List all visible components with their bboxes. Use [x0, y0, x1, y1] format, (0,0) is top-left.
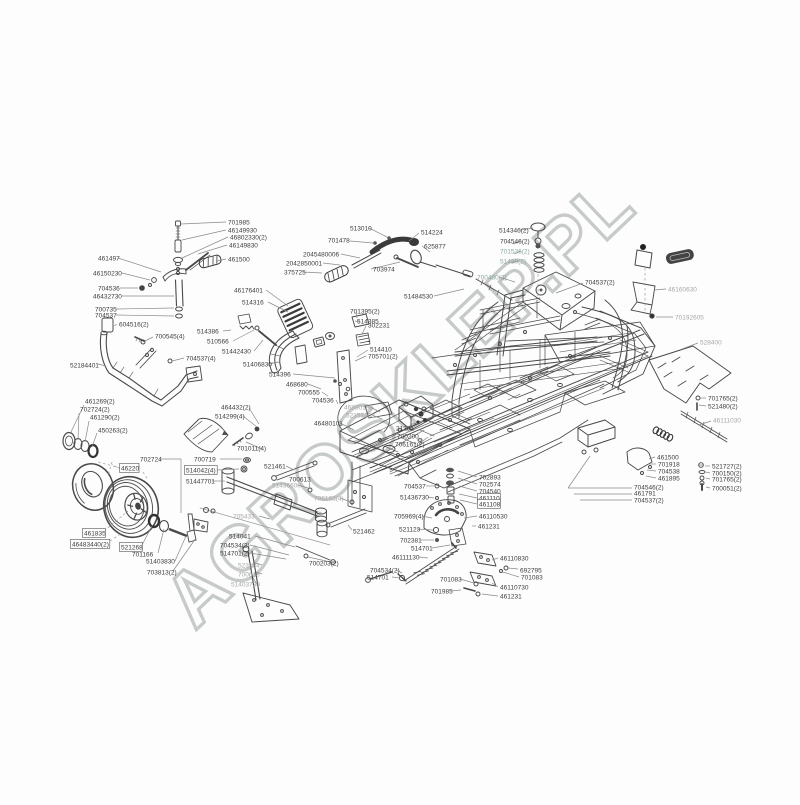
svg-text:461500: 461500 — [228, 256, 250, 263]
svg-text:700051(2): 700051(2) — [712, 485, 742, 492]
svg-text:523134: 523134 — [238, 562, 260, 569]
svg-text:706163(4): 706163(4) — [314, 495, 344, 502]
svg-text:625877: 625877 — [424, 243, 446, 250]
svg-text:46802330(2): 46802330(2) — [230, 234, 267, 241]
svg-text:461231: 461231 — [478, 523, 500, 530]
svg-text:704534(2): 704534(2) — [220, 542, 250, 549]
svg-text:702574: 702574 — [479, 481, 501, 488]
svg-text:701918: 701918 — [658, 461, 680, 468]
svg-text:703974: 703974 — [373, 266, 395, 273]
svg-text:461108: 461108 — [479, 501, 501, 508]
svg-text:46150230: 46150230 — [93, 270, 122, 277]
svg-text:704546(2): 704546(2) — [500, 238, 530, 245]
svg-text:514041: 514041 — [229, 533, 251, 540]
svg-text:514701: 514701 — [411, 545, 433, 552]
svg-text:21361: 21361 — [396, 425, 414, 432]
svg-text:513010: 513010 — [350, 225, 372, 232]
svg-text:528400: 528400 — [700, 339, 722, 346]
svg-text:514042(4): 514042(4) — [186, 467, 216, 474]
svg-text:46149930: 46149930 — [228, 227, 257, 234]
svg-text:46220: 46220 — [121, 465, 139, 472]
svg-text:461500: 461500 — [657, 454, 679, 461]
svg-text:704534(2): 704534(2) — [370, 567, 400, 574]
svg-text:464432(2): 464432(2) — [221, 404, 251, 411]
svg-text:706161(2): 706161(2) — [395, 441, 425, 448]
svg-text:2045480006: 2045480006 — [303, 251, 340, 258]
svg-text:52184401: 52184401 — [70, 362, 99, 369]
svg-text:51484530: 51484530 — [404, 293, 433, 300]
svg-text:521123: 521123 — [399, 526, 421, 533]
svg-text:51406830: 51406830 — [243, 361, 272, 368]
svg-text:461497: 461497 — [98, 255, 120, 262]
svg-text:704537: 704537 — [95, 312, 117, 319]
svg-text:702724(2): 702724(2) — [80, 406, 110, 413]
svg-text:705433: 705433 — [233, 513, 255, 520]
svg-text:51403730: 51403730 — [231, 581, 260, 588]
svg-text:692795: 692795 — [520, 567, 542, 574]
svg-text:46110730: 46110730 — [500, 584, 529, 591]
svg-text:461269(2): 461269(2) — [85, 398, 115, 405]
svg-text:461290(2): 461290(2) — [90, 414, 120, 421]
svg-text:700545(4): 700545(4) — [155, 333, 185, 340]
svg-text:46149830: 46149830 — [229, 242, 258, 249]
svg-text:700480(2): 700480(2) — [477, 274, 507, 281]
svg-text:701083: 701083 — [521, 574, 543, 581]
svg-text:461835: 461835 — [84, 530, 106, 537]
svg-text:302231: 302231 — [368, 322, 390, 329]
svg-text:701166: 701166 — [132, 551, 154, 558]
svg-text:521480(2): 521480(2) — [708, 403, 738, 410]
svg-text:51480(2): 51480(2) — [500, 258, 526, 265]
svg-text:521461: 521461 — [264, 463, 286, 470]
svg-text:701985: 701985 — [228, 219, 250, 226]
svg-text:701011(4): 701011(4) — [237, 445, 266, 452]
svg-text:375725: 375725 — [284, 269, 306, 276]
svg-text:700203(2): 700203(2) — [309, 560, 339, 567]
svg-text:461231: 461231 — [500, 593, 522, 600]
svg-text:704537(4): 704537(4) — [186, 355, 216, 362]
svg-text:46890103: 46890103 — [344, 404, 373, 411]
svg-text:52157303: 52157303 — [346, 412, 375, 419]
svg-text:461791: 461791 — [634, 490, 656, 497]
svg-text:704537(2): 704537(2) — [585, 279, 615, 286]
svg-text:702724: 702724 — [140, 456, 162, 463]
svg-text:46480101: 46480101 — [314, 420, 343, 427]
svg-text:2042850001: 2042850001 — [286, 260, 323, 267]
svg-text:700200: 700200 — [397, 433, 419, 440]
svg-text:700618: 700618 — [238, 571, 260, 578]
svg-text:46110830: 46110830 — [500, 555, 529, 562]
svg-text:461895: 461895 — [658, 475, 680, 482]
svg-text:51403830: 51403830 — [146, 558, 175, 565]
svg-text:701765(2): 701765(2) — [712, 476, 742, 483]
svg-text:514299(4): 514299(4) — [215, 413, 245, 420]
svg-text:514224: 514224 — [421, 229, 443, 236]
svg-text:514410: 514410 — [370, 346, 392, 353]
svg-text:700555: 700555 — [298, 389, 320, 396]
svg-text:514386: 514386 — [197, 328, 219, 335]
svg-text:514316: 514316 — [242, 299, 264, 306]
svg-text:46111030: 46111030 — [713, 417, 741, 424]
svg-text:704537(2): 704537(2) — [634, 497, 664, 504]
svg-text:514701(2): 514701(2) — [220, 550, 250, 557]
svg-text:521727(2): 521727(2) — [712, 463, 742, 470]
svg-text:46160630: 46160630 — [668, 286, 697, 293]
svg-text:701083: 701083 — [440, 576, 462, 583]
svg-text:450263(2): 450263(2) — [98, 427, 128, 434]
svg-text:701765(2): 701765(2) — [708, 395, 738, 402]
svg-text:514701: 514701 — [367, 574, 389, 581]
svg-text:701985: 701985 — [431, 588, 453, 595]
svg-text:701536(2): 701536(2) — [500, 248, 530, 255]
svg-text:701478: 701478 — [328, 237, 350, 244]
svg-text:46110530: 46110530 — [479, 513, 508, 520]
svg-text:703813(2): 703813(2) — [147, 569, 177, 576]
svg-text:704538: 704538 — [658, 468, 680, 475]
svg-text:702381: 702381 — [400, 537, 422, 544]
svg-text:705701(2): 705701(2) — [368, 353, 398, 360]
svg-text:521268: 521268 — [121, 544, 143, 551]
svg-text:46176401: 46176401 — [234, 287, 263, 294]
svg-text:704536: 704536 — [312, 397, 334, 404]
svg-text:51436600: 51436600 — [272, 482, 301, 489]
svg-text:705969(4): 705969(4) — [394, 513, 424, 520]
svg-text:46432730: 46432730 — [93, 293, 122, 300]
svg-text:514346(2): 514346(2) — [499, 227, 529, 234]
svg-text:700719: 700719 — [194, 456, 216, 463]
svg-text:521462: 521462 — [353, 528, 375, 535]
svg-text:514396: 514396 — [269, 371, 291, 378]
svg-text:51436730: 51436730 — [400, 494, 429, 501]
svg-text:702893: 702893 — [479, 474, 501, 481]
svg-text:70192605: 70192605 — [675, 314, 704, 321]
svg-text:510566: 510566 — [207, 338, 229, 345]
svg-text:46483440(2): 46483440(2) — [72, 541, 109, 548]
svg-text:51447701: 51447701 — [186, 478, 215, 485]
svg-text:46111130: 46111130 — [392, 554, 420, 561]
svg-text:468680: 468680 — [286, 381, 308, 388]
svg-text:604516(2): 604516(2) — [119, 321, 149, 328]
svg-text:704537: 704537 — [404, 483, 426, 490]
svg-text:704536: 704536 — [98, 285, 120, 292]
svg-text:701395(2): 701395(2) — [350, 308, 380, 315]
svg-text:51442430: 51442430 — [222, 348, 251, 355]
